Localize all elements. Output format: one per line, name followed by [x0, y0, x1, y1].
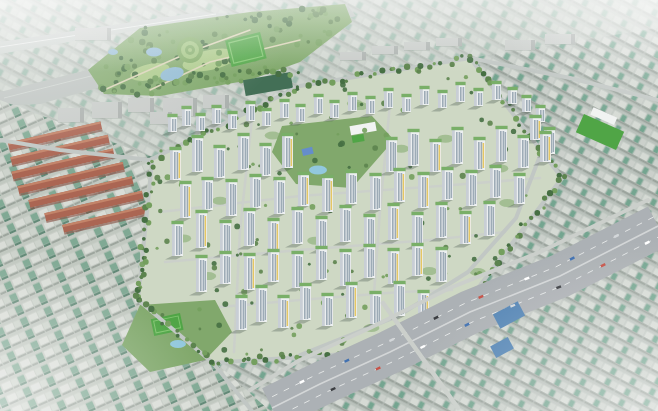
aerial-city-rendering [0, 0, 658, 411]
scene-svg [0, 0, 658, 411]
haze-veil [0, 0, 658, 411]
atmospheric-haze [0, 0, 658, 411]
